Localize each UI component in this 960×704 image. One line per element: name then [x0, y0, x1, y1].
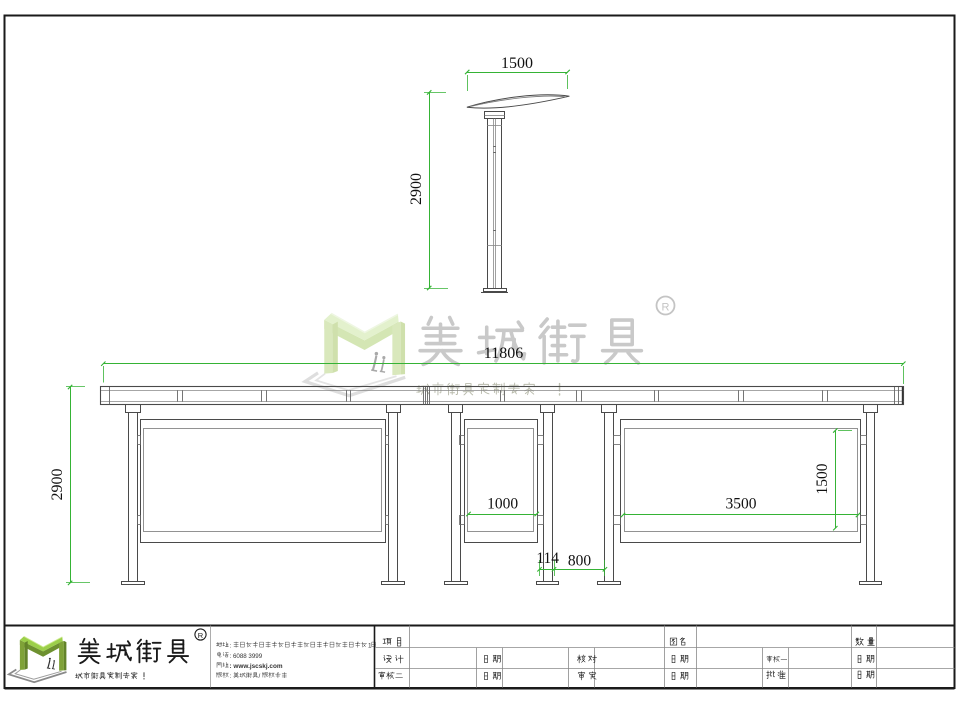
svg-text:R: R: [662, 302, 670, 314]
svg-text:R: R: [198, 631, 204, 640]
svg-text:114: 114: [536, 550, 559, 567]
svg-text::: :: [230, 643, 232, 650]
svg-text::: :: [230, 673, 232, 680]
svg-text:1: 1: [368, 643, 372, 650]
svg-text:1000: 1000: [487, 496, 518, 513]
svg-text:3500: 3500: [726, 496, 757, 513]
svg-text:2900: 2900: [408, 173, 425, 205]
svg-text:: 6088 3999: : 6088 3999: [230, 653, 263, 660]
svg-text:/: /: [259, 673, 261, 680]
svg-text:1500: 1500: [814, 463, 831, 494]
svg-text:1500: 1500: [501, 55, 533, 72]
svg-text:2900: 2900: [49, 469, 66, 501]
svg-text:: www.jscskj.com: : www.jscskj.com: [230, 663, 283, 670]
svg-text:800: 800: [568, 553, 592, 570]
svg-text:11806: 11806: [484, 345, 523, 362]
